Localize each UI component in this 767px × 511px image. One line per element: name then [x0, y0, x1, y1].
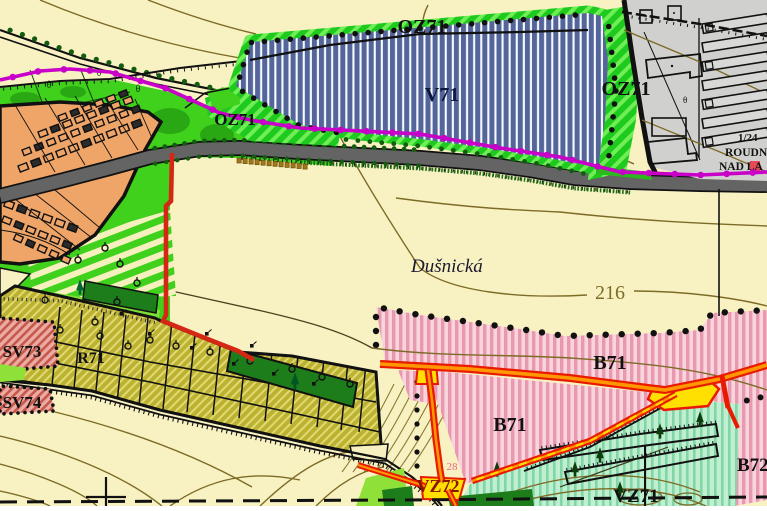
- svg-text:θ: θ: [683, 95, 687, 105]
- svg-text:ROUDN: ROUDN: [725, 147, 767, 159]
- svg-text:VZ71: VZ71: [613, 486, 658, 506]
- svg-text:R71: R71: [77, 350, 105, 367]
- svg-text:V71: V71: [425, 84, 459, 106]
- svg-text:1/24: 1/24: [738, 132, 758, 144]
- svg-text:B71: B71: [493, 414, 526, 436]
- svg-text:216: 216: [595, 282, 625, 304]
- svg-text:Dušnická: Dušnická: [410, 256, 483, 277]
- svg-text:SV73: SV73: [3, 342, 42, 361]
- svg-text:OZ71: OZ71: [398, 16, 447, 38]
- svg-text:θ: θ: [136, 84, 141, 95]
- svg-text:B72: B72: [737, 455, 767, 476]
- svg-text:28: 28: [447, 461, 459, 473]
- svg-text:OZ71: OZ71: [214, 110, 256, 129]
- svg-text:VZ72: VZ72: [416, 476, 459, 496]
- svg-text:OZ71: OZ71: [602, 78, 651, 100]
- svg-text:B71: B71: [593, 352, 626, 374]
- svg-text:SV74: SV74: [3, 393, 42, 412]
